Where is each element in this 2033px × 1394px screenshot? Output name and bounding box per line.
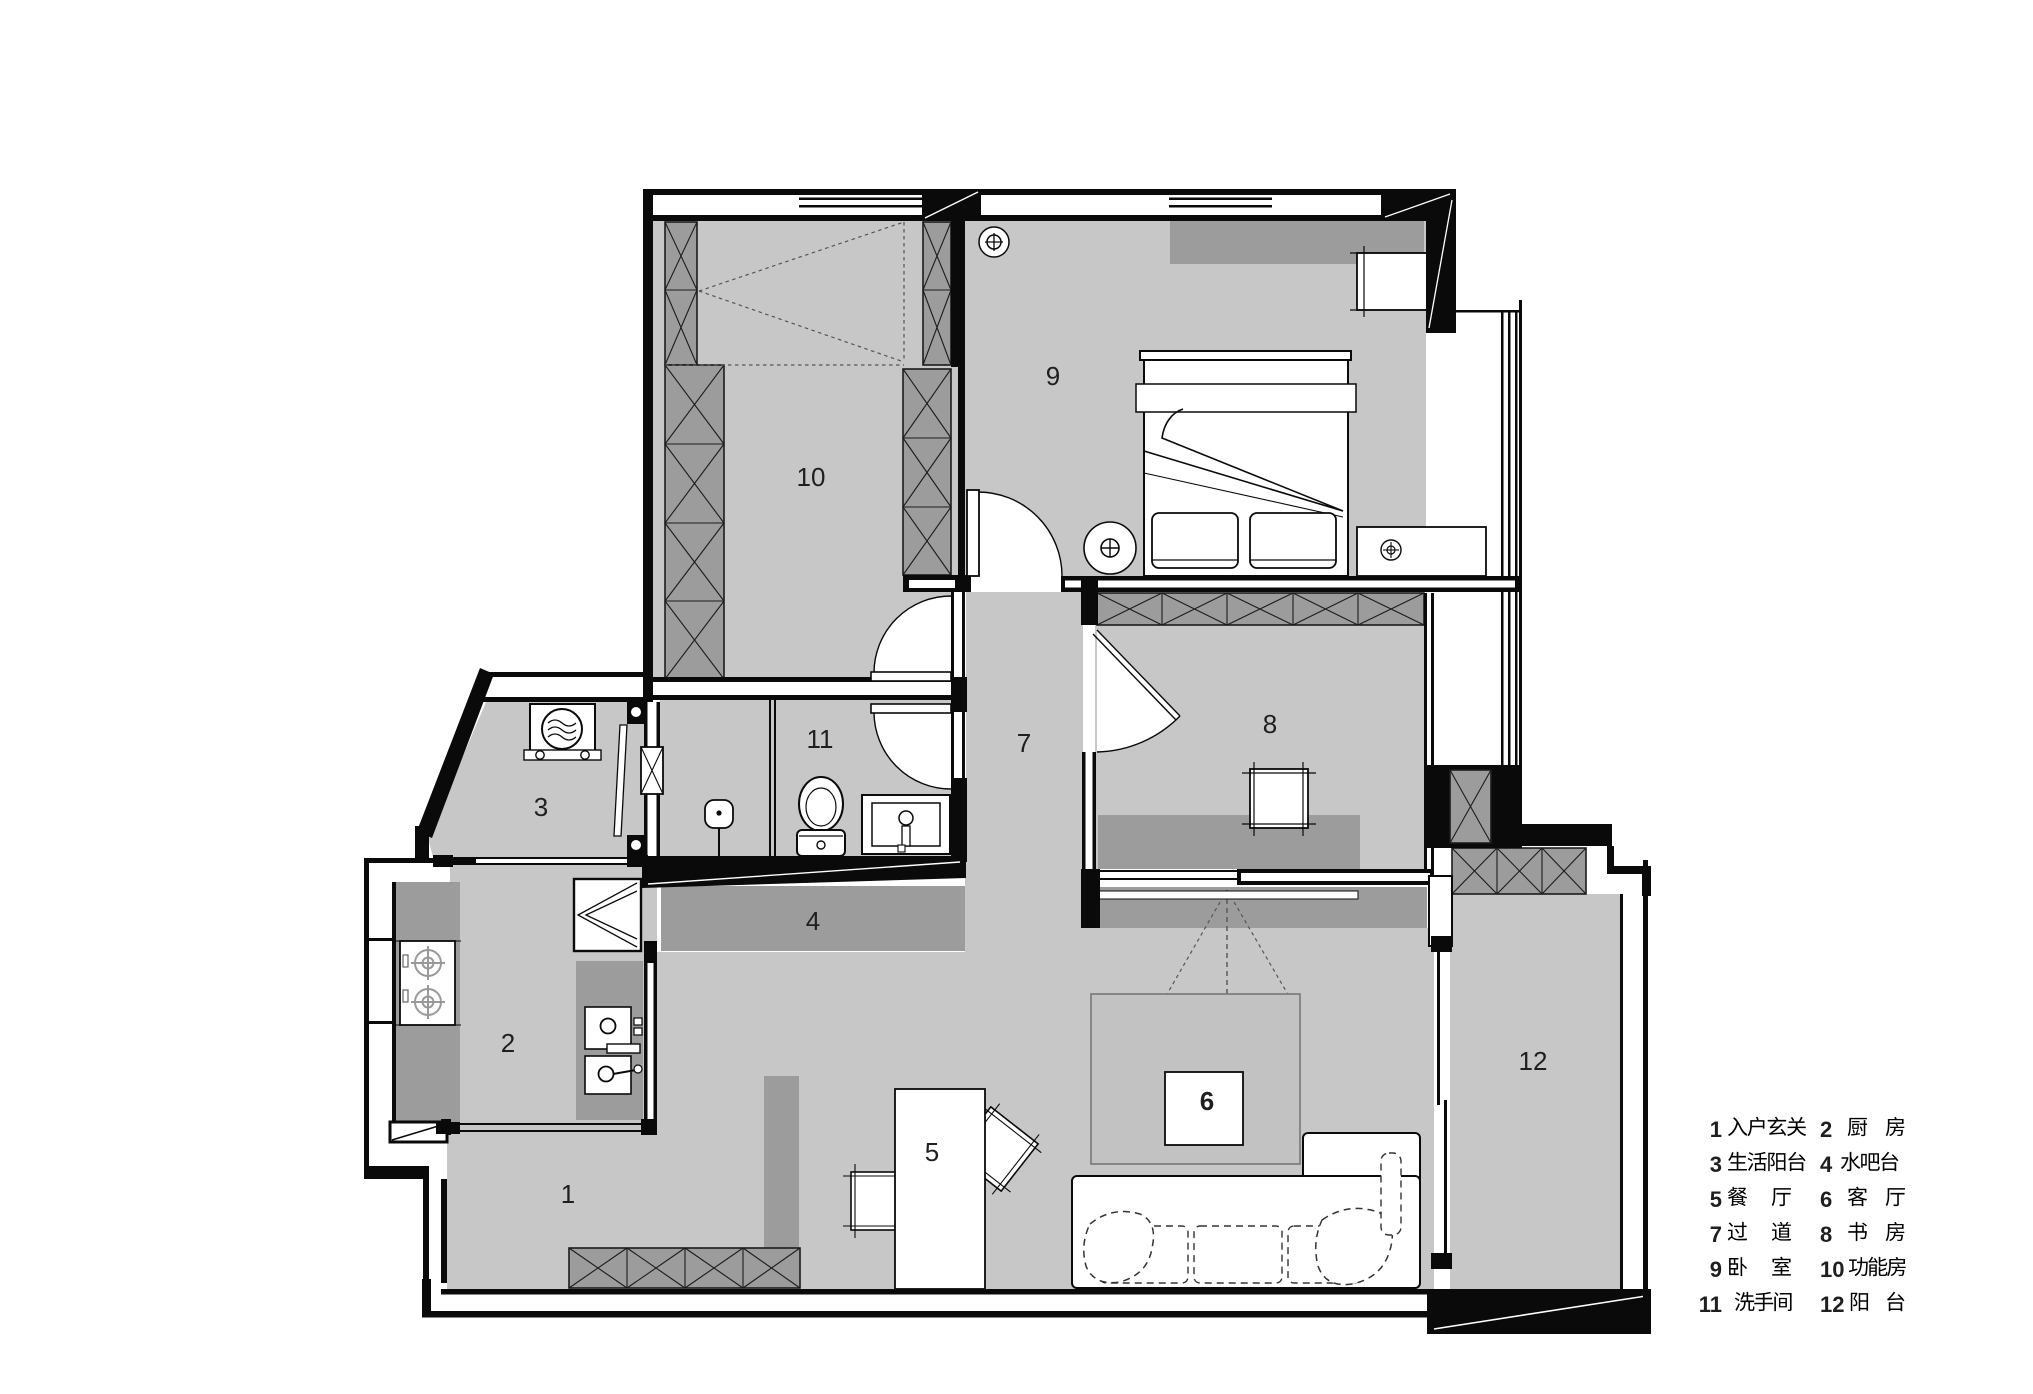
- svg-text:5: 5: [1710, 1187, 1722, 1212]
- svg-text:11: 11: [807, 724, 834, 754]
- svg-text:6: 6: [1200, 1086, 1214, 1116]
- svg-text:2: 2: [1820, 1117, 1832, 1142]
- svg-text:11: 11: [1699, 1292, 1722, 1317]
- svg-text:9: 9: [1046, 361, 1060, 391]
- svg-text:8: 8: [1820, 1222, 1832, 1247]
- svg-text:1: 1: [561, 1179, 575, 1209]
- svg-text:10: 10: [797, 462, 826, 492]
- svg-text:12: 12: [1519, 1046, 1548, 1076]
- svg-text:4: 4: [1820, 1152, 1833, 1177]
- svg-text:3: 3: [534, 792, 548, 822]
- svg-text:7: 7: [1710, 1222, 1722, 1247]
- svg-text:8: 8: [1263, 709, 1277, 739]
- svg-text:12: 12: [1820, 1292, 1844, 1317]
- svg-text:5: 5: [925, 1137, 939, 1167]
- svg-text:10: 10: [1820, 1257, 1844, 1282]
- svg-text:6: 6: [1820, 1187, 1832, 1212]
- svg-text:4: 4: [806, 906, 820, 936]
- svg-text:1: 1: [1710, 1117, 1722, 1142]
- svg-text:2: 2: [501, 1028, 515, 1058]
- svg-text:7: 7: [1017, 728, 1031, 758]
- svg-text:3: 3: [1710, 1152, 1722, 1177]
- svg-text:9: 9: [1710, 1257, 1722, 1282]
